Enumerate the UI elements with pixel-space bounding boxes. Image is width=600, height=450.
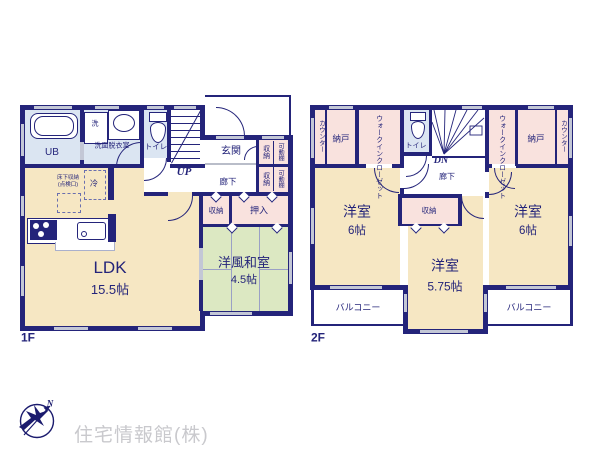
underfloor-label-2: (点検口)	[58, 183, 78, 189]
room-label-hallway-1f: 廊下	[219, 178, 236, 187]
window	[569, 118, 572, 158]
company-logo-text: 住宅情報館(株)	[74, 420, 209, 447]
entrance-door-arc	[216, 107, 245, 136]
room-label-nando-right: 納戸	[527, 135, 544, 144]
window	[404, 294, 407, 312]
window	[34, 106, 72, 109]
entrance-door	[216, 136, 244, 139]
wall	[355, 105, 359, 166]
window	[147, 106, 164, 109]
window	[289, 252, 292, 284]
wall	[325, 110, 327, 166]
compass-icon	[16, 396, 62, 444]
toilet-tank-2f	[410, 112, 426, 121]
balcony-right-label: バルコニー	[507, 303, 552, 312]
sliding-door	[199, 248, 203, 280]
window	[462, 106, 482, 109]
door-arc	[244, 146, 258, 160]
room-label-nando-left: 納戸	[332, 135, 349, 144]
porch-outline-right	[289, 95, 291, 140]
wall	[229, 196, 232, 224]
room-size-ldk: 15.5帖	[91, 283, 129, 297]
window	[569, 216, 572, 246]
room-label-shelf-top: 可動棚	[277, 143, 283, 161]
wall-stub	[108, 168, 114, 200]
stairs-2f	[432, 110, 485, 156]
room-label-hallway-2f: 廊下	[439, 173, 455, 181]
floor-2-label: 2F	[311, 332, 325, 345]
balcony-door	[506, 286, 556, 289]
room-label-bedroom-left: 洋室	[343, 205, 371, 220]
room-size-bedroom-right: 6帖	[519, 225, 537, 237]
wall	[398, 194, 402, 226]
room-label-bedroom-right: 洋室	[514, 205, 542, 220]
wall	[515, 110, 518, 166]
wall	[144, 192, 168, 196]
underfloor-hatch	[57, 193, 81, 213]
window	[21, 196, 24, 216]
room-label-storage-center: 収納	[422, 207, 437, 215]
faucet-dot	[81, 231, 87, 237]
shelf-divider	[273, 141, 274, 191]
floor-plan-canvas: UB 洗 洗面脱衣室 トイレ UP 玄関 廊下 収納 可動棚 収納 可動棚 床下…	[0, 0, 600, 450]
room-label-washitsu: 洋風和室	[218, 256, 270, 270]
room-label-storage-bottom: 収納	[262, 172, 269, 186]
room-label-washroom: 洗面脱衣室	[95, 142, 130, 149]
porch-outline-top	[205, 95, 291, 97]
floor-1-label: 1F	[21, 332, 35, 345]
compass-north-label: N	[47, 399, 54, 408]
room-label-washer: 洗	[92, 120, 99, 127]
wall	[398, 194, 462, 198]
room-label-toilet-1f: トイレ	[145, 143, 168, 151]
window	[210, 312, 252, 315]
storage-front-line	[402, 224, 458, 226]
balcony-left-label: バルコニー	[336, 303, 381, 312]
wall	[20, 326, 205, 331]
wall	[310, 164, 366, 168]
room-label-storage-top: 収納	[262, 145, 269, 159]
room-label-toilet-2f: トイレ	[406, 142, 427, 149]
room-label-wic-left: ウォークインクローゼット	[375, 115, 382, 159]
balcony-door	[330, 286, 382, 289]
wall	[555, 110, 557, 166]
stove-burner	[43, 222, 49, 228]
stove-burner	[33, 223, 39, 229]
window	[262, 136, 284, 139]
window	[174, 106, 196, 109]
window	[528, 106, 554, 109]
room-size-washitsu: 4.5帖	[231, 275, 257, 287]
room-size-bedroom-center: 5.75帖	[427, 281, 462, 294]
room-label-ldk: LDK	[93, 259, 126, 277]
room-label-wic-right: ウォークインクローゼット	[498, 115, 505, 159]
wall	[489, 164, 492, 168]
wall	[259, 164, 293, 167]
window	[311, 208, 314, 244]
room-label-ub: UB	[45, 148, 59, 159]
underfloor-label-1: 床下収納	[57, 176, 79, 182]
sink-basin	[113, 114, 135, 132]
toilet-tank-1f	[149, 112, 167, 122]
washing-machine-box	[84, 112, 108, 144]
room-label-shelf-bottom: 可動棚	[277, 170, 283, 188]
fridge-label: 冷	[90, 180, 98, 188]
stairs-down-label: DN	[434, 156, 448, 167]
room-label-storage-mid: 収納	[209, 207, 224, 215]
counter-ledge	[55, 242, 115, 251]
window	[484, 294, 487, 312]
stairs-up-label: UP	[177, 167, 192, 179]
stove-burner	[38, 231, 44, 237]
window	[420, 330, 468, 333]
window	[329, 106, 353, 109]
genkan-step	[205, 163, 256, 165]
window	[95, 106, 119, 109]
room-label-bedroom-center: 洋室	[431, 259, 459, 274]
wall	[485, 105, 489, 172]
room-label-counter-left: カウンター	[317, 120, 324, 153]
window	[54, 327, 88, 330]
room-size-bedroom-left: 6帖	[348, 225, 366, 237]
room-label-oshiire: 押入	[250, 206, 268, 215]
wall	[516, 164, 573, 168]
window	[138, 327, 172, 330]
bathtub-inner	[34, 116, 74, 136]
door-gap	[80, 142, 84, 160]
room-label-genkan: 玄関	[221, 147, 241, 158]
window	[21, 266, 24, 296]
window	[21, 124, 24, 156]
window	[311, 118, 314, 158]
wall-stub	[108, 214, 116, 242]
room-label-counter-right: カウンター	[559, 120, 566, 153]
